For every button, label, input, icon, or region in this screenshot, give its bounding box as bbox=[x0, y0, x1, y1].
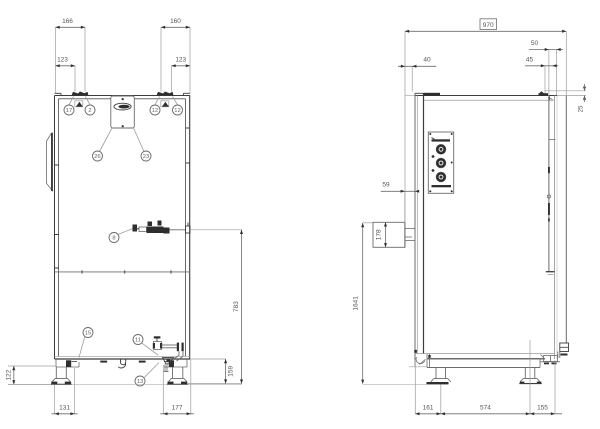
svg-text:2: 2 bbox=[88, 108, 91, 114]
svg-text:11: 11 bbox=[135, 338, 141, 344]
svg-text:26: 26 bbox=[94, 154, 100, 160]
svg-text:155: 155 bbox=[537, 405, 548, 412]
svg-text:131: 131 bbox=[59, 405, 70, 412]
svg-text:783: 783 bbox=[233, 301, 240, 312]
svg-text:970: 970 bbox=[483, 22, 494, 29]
svg-text:50: 50 bbox=[531, 40, 539, 47]
svg-text:17: 17 bbox=[66, 108, 72, 114]
svg-text:178: 178 bbox=[376, 229, 383, 240]
svg-text:160: 160 bbox=[170, 18, 181, 25]
svg-text:15: 15 bbox=[85, 331, 91, 337]
svg-text:40: 40 bbox=[423, 57, 431, 64]
svg-text:23: 23 bbox=[143, 154, 149, 160]
svg-text:123: 123 bbox=[57, 56, 68, 63]
svg-text:12: 12 bbox=[152, 108, 158, 114]
svg-text:122: 122 bbox=[6, 369, 13, 380]
svg-text:123: 123 bbox=[175, 56, 186, 63]
svg-text:1641: 1641 bbox=[353, 296, 360, 311]
svg-text:166: 166 bbox=[62, 18, 73, 25]
svg-text:12: 12 bbox=[174, 108, 180, 114]
svg-text:45: 45 bbox=[526, 57, 534, 64]
svg-text:25: 25 bbox=[579, 105, 585, 112]
svg-text:159: 159 bbox=[228, 365, 235, 376]
svg-text:59: 59 bbox=[382, 182, 390, 189]
svg-text:161: 161 bbox=[423, 405, 434, 412]
svg-text:8: 8 bbox=[112, 236, 115, 242]
svg-text:177: 177 bbox=[172, 405, 183, 412]
svg-text:574: 574 bbox=[480, 405, 491, 412]
